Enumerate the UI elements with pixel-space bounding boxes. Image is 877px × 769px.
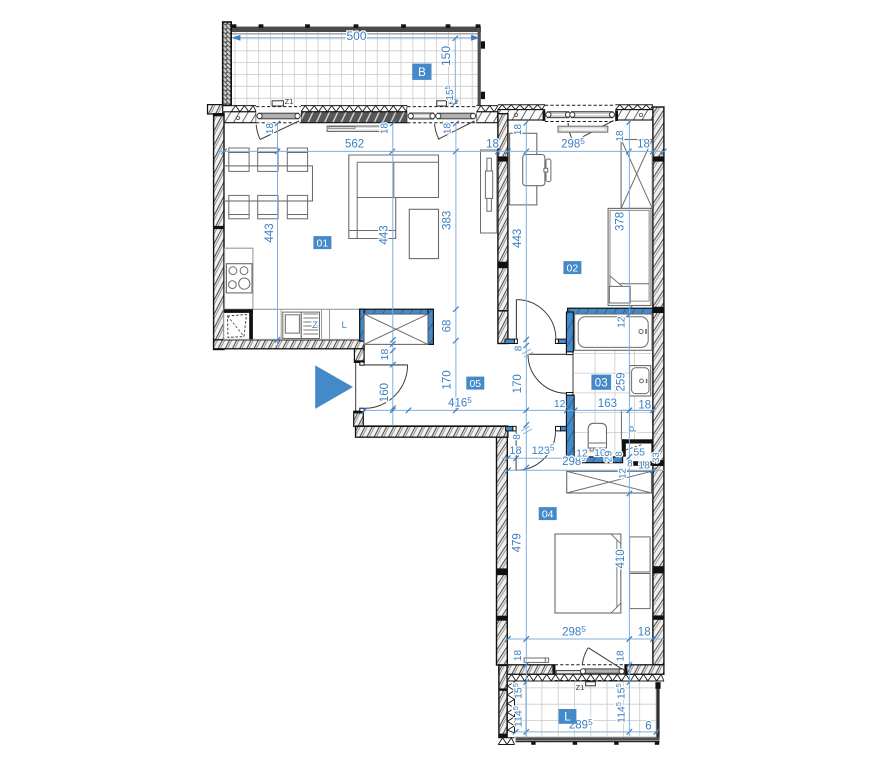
svg-text:Z: Z [312, 320, 318, 331]
svg-text:L: L [341, 320, 346, 331]
svg-text:18: 18 [616, 650, 627, 662]
svg-text:18: 18 [638, 400, 651, 412]
svg-text:18: 18 [615, 130, 626, 142]
svg-text:18: 18 [443, 123, 454, 135]
svg-text:03: 03 [595, 377, 608, 389]
svg-text:8: 8 [614, 451, 625, 456]
svg-text:33: 33 [651, 452, 662, 463]
svg-text:12: 12 [616, 316, 628, 328]
svg-text:18: 18 [265, 123, 276, 135]
svg-text:443: 443 [512, 229, 524, 248]
svg-text:160: 160 [379, 383, 391, 402]
svg-text:170: 170 [512, 374, 524, 393]
svg-text:05: 05 [469, 378, 481, 390]
svg-text:18: 18 [380, 123, 391, 135]
svg-text:55: 55 [633, 447, 645, 459]
svg-text:383: 383 [442, 211, 454, 230]
svg-text:18: 18 [638, 627, 651, 639]
svg-text:163: 163 [598, 398, 617, 410]
svg-text:Z1: Z1 [285, 97, 294, 106]
svg-text:2985: 2985 [561, 136, 585, 151]
svg-text:8: 8 [513, 345, 524, 351]
svg-text:L: L [564, 712, 571, 724]
svg-text:2985: 2985 [562, 624, 586, 639]
svg-text:170: 170 [442, 370, 454, 389]
svg-text:18: 18 [379, 349, 391, 361]
svg-text:500: 500 [346, 29, 366, 43]
svg-text:443: 443 [264, 223, 276, 242]
svg-text:12: 12 [576, 448, 588, 460]
svg-text:562: 562 [345, 139, 364, 151]
svg-text:410: 410 [615, 549, 627, 568]
svg-text:378: 378 [615, 212, 627, 231]
svg-text:B: B [418, 67, 426, 79]
svg-text:443: 443 [379, 225, 391, 244]
svg-text:18: 18 [638, 460, 650, 472]
svg-text:18: 18 [509, 445, 521, 457]
svg-text:68: 68 [442, 320, 454, 333]
svg-text:18: 18 [486, 139, 499, 151]
svg-text:12: 12 [617, 468, 628, 479]
svg-text:18: 18 [513, 650, 524, 662]
svg-text:150: 150 [439, 46, 453, 66]
svg-text:Z1: Z1 [576, 683, 585, 692]
svg-text:8: 8 [512, 434, 523, 440]
svg-text:29: 29 [603, 451, 615, 463]
svg-text:04: 04 [542, 508, 554, 520]
svg-text:02: 02 [567, 262, 579, 274]
svg-text:4165: 4165 [448, 395, 472, 410]
svg-text:01: 01 [317, 237, 329, 249]
svg-text:479: 479 [512, 533, 524, 552]
svg-text:8: 8 [627, 459, 632, 470]
svg-text:18: 18 [513, 124, 524, 136]
svg-text:12: 12 [554, 398, 566, 410]
svg-text:1235: 1235 [532, 444, 555, 458]
svg-text:6: 6 [645, 721, 651, 733]
svg-text:259: 259 [616, 372, 628, 391]
svg-text:18: 18 [637, 139, 650, 151]
